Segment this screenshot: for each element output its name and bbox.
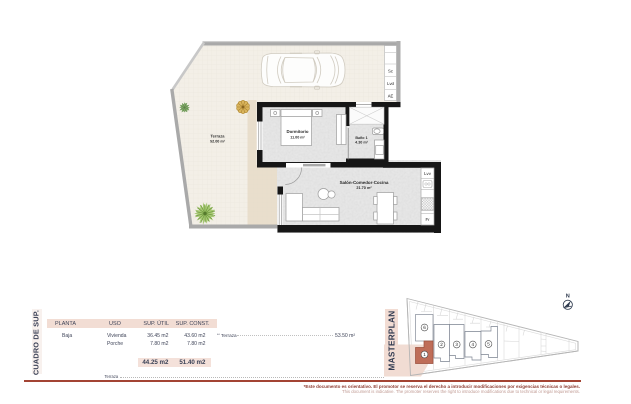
- svg-text:Salón-Comedor-Cocina: Salón-Comedor-Cocina: [340, 180, 389, 185]
- svg-text:Terraza: Terraza: [211, 134, 226, 139]
- svg-text:52.00 m²: 52.00 m²: [210, 140, 226, 144]
- svg-text:4.30 m²: 4.30 m²: [355, 141, 368, 145]
- svg-text:11.00 m²: 11.00 m²: [290, 136, 305, 140]
- svg-text:Baño 1: Baño 1: [355, 136, 367, 140]
- svg-text:6: 6: [423, 325, 426, 330]
- svg-text:Dormitorio: Dormitorio: [287, 129, 309, 134]
- svg-text:Sc: Sc: [388, 68, 393, 73]
- svg-text:1: 1: [423, 352, 426, 357]
- svg-text:3: 3: [455, 342, 458, 347]
- svg-text:4: 4: [472, 342, 475, 347]
- svg-text:N: N: [566, 293, 570, 299]
- svg-text:Lvd: Lvd: [387, 81, 394, 86]
- svg-text:AE: AE: [388, 93, 394, 98]
- svg-text:5: 5: [487, 342, 490, 347]
- svg-text:21.70 m²: 21.70 m²: [356, 186, 372, 190]
- svg-text:Lvv: Lvv: [424, 171, 432, 176]
- svg-text:2: 2: [440, 342, 443, 347]
- svg-text:Fr: Fr: [425, 217, 430, 222]
